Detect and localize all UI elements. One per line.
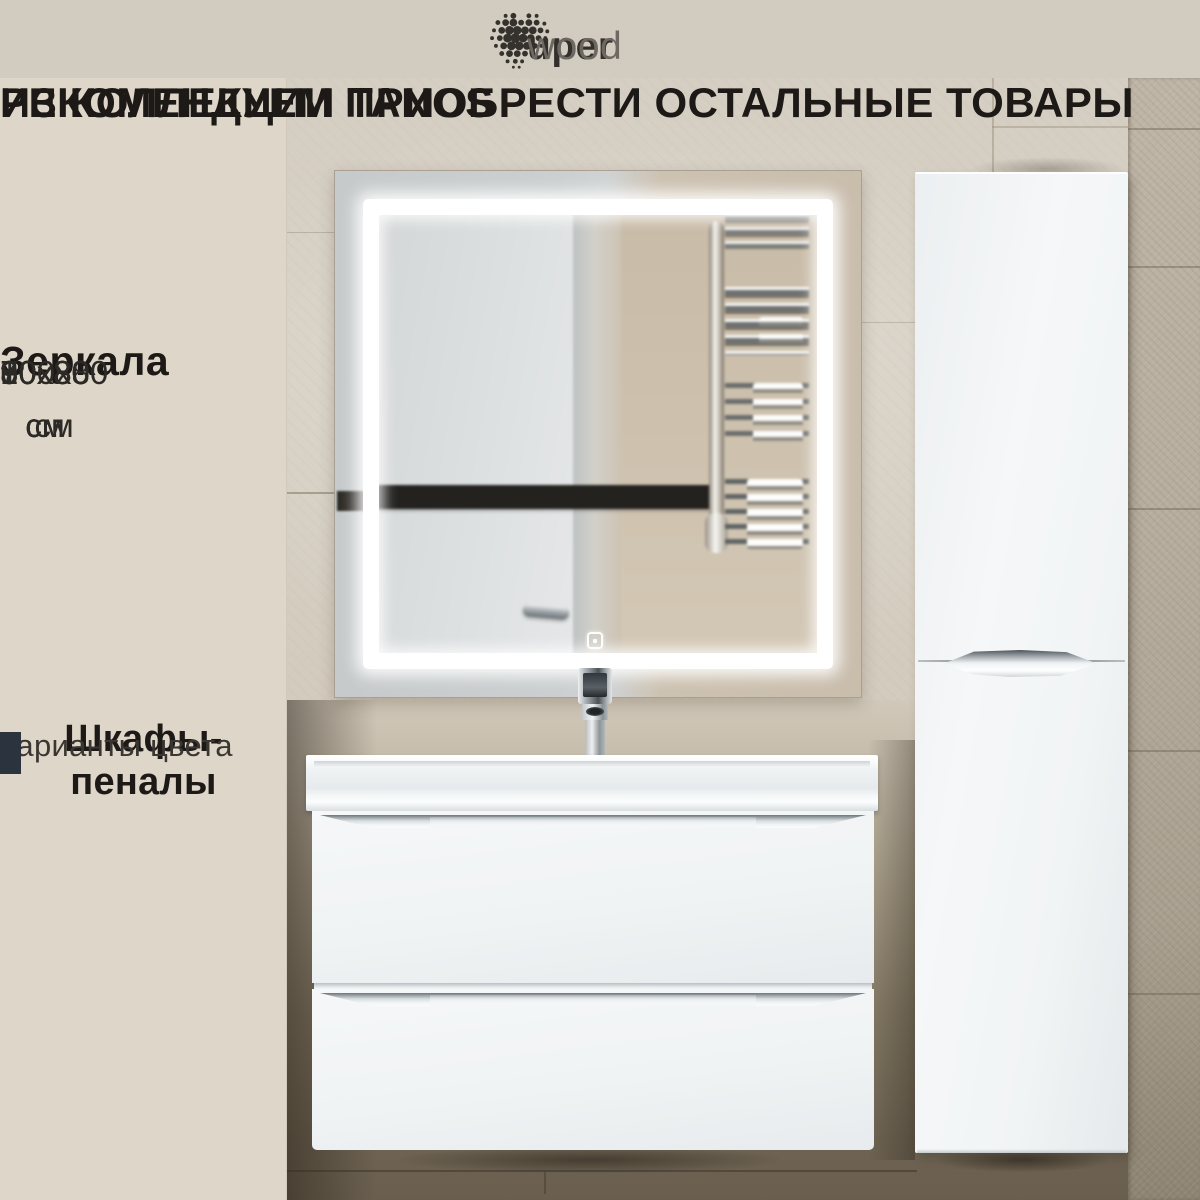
- led-mirror: [334, 170, 862, 698]
- faucet: [578, 666, 612, 760]
- vanity-cabinet: [312, 811, 874, 1150]
- tile-grout-line: [1128, 750, 1200, 752]
- vanity-sink-top: [306, 755, 878, 811]
- drawer-handle-groove: [320, 993, 866, 1006]
- drawer-handle-groove: [320, 815, 866, 828]
- tile-grout-line: [287, 232, 334, 233]
- sink-basin-shadow: [314, 761, 870, 767]
- tall-pencil-cabinet: [915, 172, 1128, 1153]
- cabinet-bottom-edge: [917, 1149, 1126, 1153]
- tile-column: [1128, 78, 1200, 1200]
- vanity-drawer-bottom: [312, 989, 874, 1150]
- faucet-face: [583, 673, 607, 697]
- tile-grout-line: [1128, 266, 1200, 268]
- brand-logo-text: uperwood: [527, 26, 743, 72]
- mirror-led-frame: [363, 199, 833, 669]
- cabinet-handle-recess: [945, 650, 1097, 677]
- swatch-dark: [0, 732, 21, 774]
- mirror-size-item: 100х80 см: [0, 346, 108, 452]
- faucet-stem: [585, 720, 605, 760]
- mirrors-block: Зеркала 60х80 см 70х80 см 80х80 см 90х80…: [0, 338, 287, 598]
- mirror-rim-stripe-reflection: [337, 491, 365, 511]
- tile-grout-line: [1128, 508, 1200, 510]
- vanity-shadow: [330, 1148, 850, 1182]
- vanity-drawer-top: [312, 811, 874, 983]
- brand-logo: uperwood: [483, 8, 743, 72]
- product-card: uperwood РЕКОМЕНДУЕМ ПРИОБРЕСТИ ОСТАЛЬНЫ…: [0, 0, 1200, 1200]
- tile-grout-line: [1128, 993, 1200, 995]
- color-variants-label: варианты цвета: [0, 728, 233, 764]
- brand-logo-text-light: wood: [527, 26, 622, 68]
- pencil-cabinets-block: Шкафы-пеналы варианты цвета: [0, 718, 287, 878]
- heading-line-2: ИЗ КОЛЛЕКЦИИ TANOS: [0, 80, 494, 125]
- recommendation-heading: РЕКОМЕНДУЕМ ПРИОБРЕСТИ ОСТАЛЬНЫЕ ТОВАРЫ …: [0, 80, 1200, 172]
- cabinet-shadow: [905, 1150, 1140, 1182]
- tile-grout-line: [287, 492, 334, 494]
- left-text-panel: [0, 78, 287, 1200]
- faucet-spout: [586, 707, 604, 716]
